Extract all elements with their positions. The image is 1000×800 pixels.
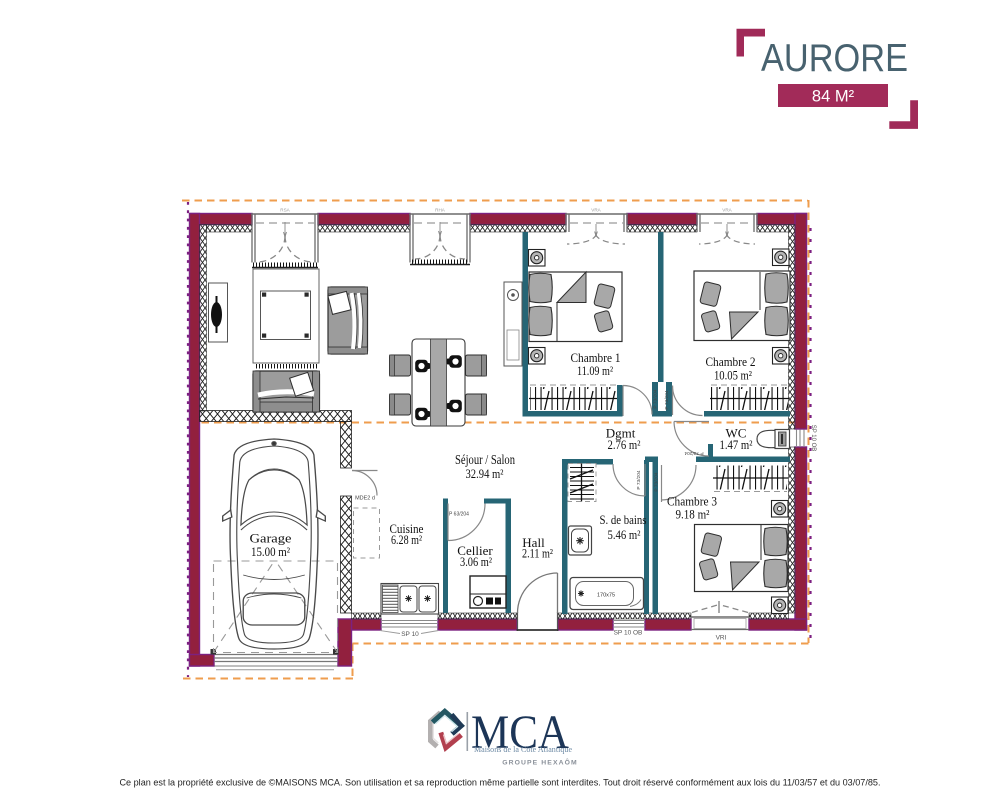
svg-text:1.47 m²: 1.47 m² bbox=[720, 438, 753, 452]
svg-text:P 73/204: P 73/204 bbox=[653, 389, 659, 408]
svg-text:5.46 m²: 5.46 m² bbox=[608, 528, 641, 542]
svg-text:SP 10: SP 10 bbox=[401, 631, 419, 638]
svg-text:10.05 m²: 10.05 m² bbox=[714, 369, 752, 383]
svg-text:SP 10 OB: SP 10 OB bbox=[614, 630, 643, 637]
svg-text:3.06 m²: 3.06 m² bbox=[460, 555, 492, 569]
svg-text:Séjour / Salon: Séjour / Salon bbox=[455, 452, 515, 467]
svg-text:RSA: RSA bbox=[280, 208, 290, 213]
svg-text:AURORE: AURORE bbox=[761, 37, 908, 80]
svg-text:2.76 m²: 2.76 m² bbox=[608, 438, 641, 452]
svg-text:MDE2 d: MDE2 d bbox=[355, 496, 375, 502]
svg-text:Maisons de la Côte Atlantique: Maisons de la Côte Atlantique bbox=[474, 745, 572, 754]
svg-text:9.18 m²: 9.18 m² bbox=[676, 508, 710, 522]
svg-text:11.09 m²: 11.09 m² bbox=[577, 364, 613, 378]
svg-text:P 73/204: P 73/204 bbox=[664, 390, 670, 409]
svg-text:6.28 m²: 6.28 m² bbox=[391, 533, 422, 547]
svg-text:Ce plan est la propriété exclu: Ce plan est la propriété exclusive de ©M… bbox=[119, 778, 880, 788]
svg-text:P 73/204: P 73/204 bbox=[684, 450, 703, 456]
svg-text:S. de bains: S. de bains bbox=[600, 512, 647, 527]
svg-text:32.94 m²: 32.94 m² bbox=[466, 467, 504, 481]
svg-text:Chambre 1: Chambre 1 bbox=[571, 350, 621, 365]
svg-text:RHA: RHA bbox=[435, 208, 446, 213]
svg-text:GROUPE HEXAÔM: GROUPE HEXAÔM bbox=[502, 758, 577, 767]
svg-text:Chambre 2: Chambre 2 bbox=[706, 354, 756, 369]
svg-text:Chambre 3: Chambre 3 bbox=[667, 494, 717, 509]
svg-text:SP 10 OB: SP 10 OB bbox=[810, 425, 816, 452]
svg-text:Garage: Garage bbox=[250, 531, 292, 546]
svg-text:170x75: 170x75 bbox=[597, 593, 615, 599]
svg-text:VRI: VRI bbox=[716, 635, 727, 642]
svg-text:P 73/204: P 73/204 bbox=[654, 472, 660, 491]
svg-text:VRA: VRA bbox=[591, 208, 601, 213]
svg-text:P 73/204: P 73/204 bbox=[636, 470, 642, 489]
svg-text:2.11 m²: 2.11 m² bbox=[522, 547, 553, 561]
svg-text:P 63/204: P 63/204 bbox=[449, 512, 469, 518]
svg-text:VRA: VRA bbox=[722, 208, 732, 213]
svg-text:15.00 m²: 15.00 m² bbox=[251, 545, 290, 559]
svg-text:84 M²: 84 M² bbox=[812, 88, 855, 106]
